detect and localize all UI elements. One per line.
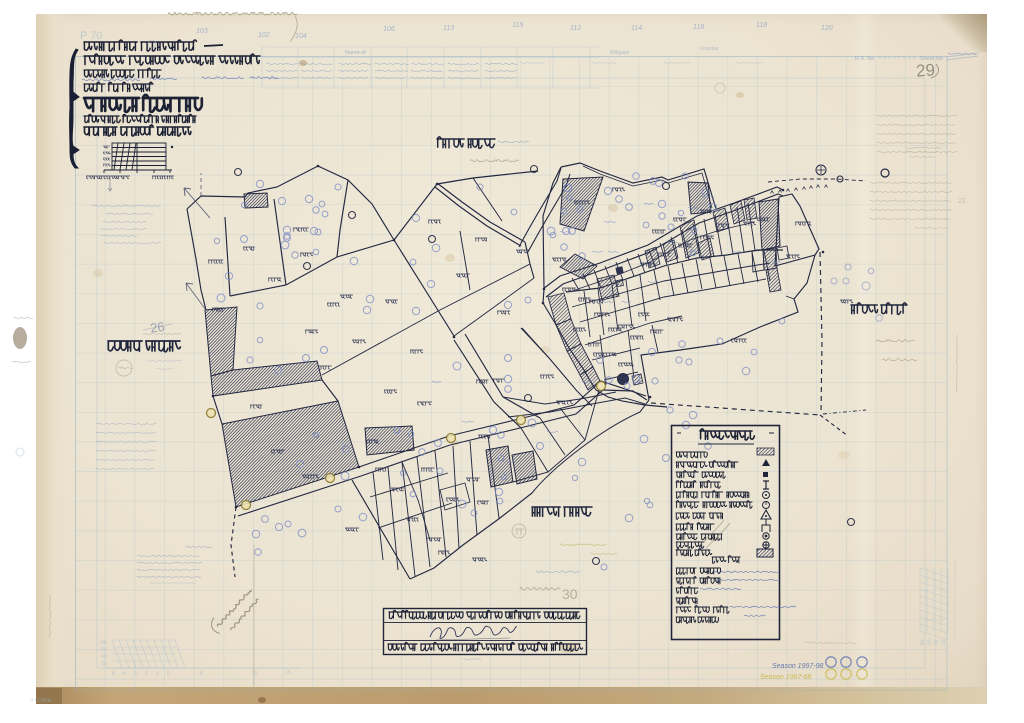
svg-text:80: 80 xyxy=(920,639,926,645)
svg-text:40: 40 xyxy=(934,639,940,645)
svg-text:Season 1967-68: Season 1967-68 xyxy=(760,674,811,681)
svg-text:20: 20 xyxy=(101,661,107,667)
svg-text:4: 4 xyxy=(123,671,126,677)
svg-text:5: 5 xyxy=(112,671,115,677)
svg-text:60: 60 xyxy=(101,647,107,653)
svg-text:Season 1997-98: Season 1997-98 xyxy=(772,663,823,670)
svg-text:20: 20 xyxy=(941,639,947,645)
svg-text:60: 60 xyxy=(927,639,933,645)
svg-text:1: 1 xyxy=(156,671,159,677)
svg-text:0: 0 xyxy=(167,671,170,677)
svg-text:2: 2 xyxy=(145,671,148,677)
svg-text:0 Chitra: 0 Chitra xyxy=(30,698,52,704)
svg-text:15: 15 xyxy=(285,670,291,676)
svg-text:22: 22 xyxy=(958,198,966,205)
svg-text:80: 80 xyxy=(101,640,107,646)
svg-text:5: 5 xyxy=(200,671,203,677)
svg-text:40: 40 xyxy=(101,654,107,660)
svg-text:10: 10 xyxy=(252,671,258,677)
svg-text:3: 3 xyxy=(134,671,137,677)
